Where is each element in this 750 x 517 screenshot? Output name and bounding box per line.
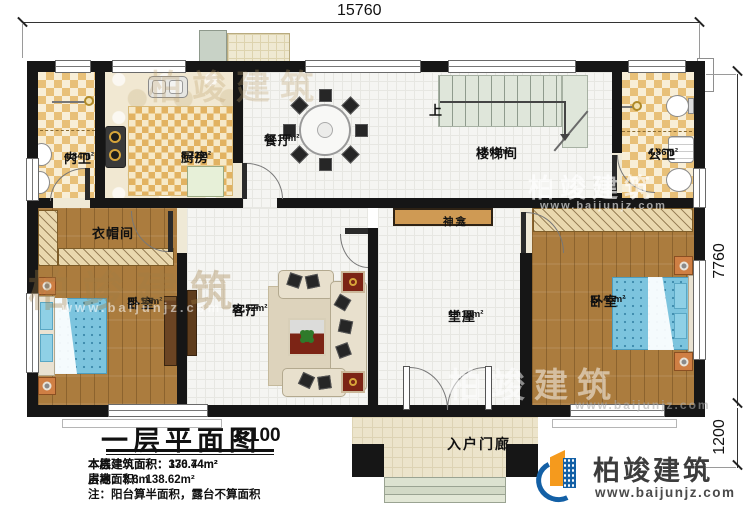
wall-kitchen-dining bbox=[233, 72, 243, 163]
logo-website: www.baijunjz.com bbox=[595, 485, 736, 500]
bed-left-pillow bbox=[40, 334, 53, 362]
dining-table-center bbox=[317, 122, 333, 138]
coffee-table-plant bbox=[301, 330, 313, 342]
window-left-bedroom bbox=[26, 293, 39, 373]
dimension-top-value: 15760 bbox=[337, 2, 382, 20]
bedroom-right-door-leaf bbox=[521, 212, 526, 253]
plan-scale: 1:100 bbox=[232, 425, 281, 447]
dimension-extension bbox=[22, 24, 23, 58]
window-top-innerbath bbox=[55, 60, 91, 73]
bed-right-pillow bbox=[674, 313, 687, 339]
wall-mainhall-bedroom bbox=[520, 253, 532, 405]
window-bottom-bedroom-right bbox=[570, 404, 665, 417]
stair-arrow-head bbox=[560, 134, 570, 141]
window-right-publicbath bbox=[693, 168, 706, 208]
wall-living-mainhall bbox=[368, 228, 378, 405]
shower-head-innerbath bbox=[84, 96, 94, 106]
dimension-extension bbox=[706, 74, 736, 75]
flue-box bbox=[199, 30, 227, 62]
ledge-box bbox=[227, 33, 290, 62]
window-top-publicbath bbox=[628, 60, 686, 73]
title-underline-thick bbox=[106, 449, 274, 452]
nightstand bbox=[38, 277, 56, 295]
kitchen-door-leaf bbox=[242, 163, 247, 199]
porch-column-left bbox=[352, 444, 384, 477]
publicbath-door-leaf bbox=[612, 155, 617, 193]
wardrobe-left-vertical bbox=[38, 210, 58, 266]
kitchen-fridge bbox=[187, 166, 224, 197]
door-gap-cloak bbox=[177, 208, 187, 253]
dining-chair bbox=[319, 89, 332, 102]
bed-right-pillow bbox=[674, 283, 687, 309]
logo-company: 柏竣建筑 bbox=[593, 449, 713, 488]
dining-chair bbox=[319, 158, 332, 171]
dimension-extension bbox=[699, 24, 700, 58]
bed-left-pillow bbox=[40, 302, 53, 330]
wall-h-right bbox=[378, 198, 705, 208]
tv-console bbox=[187, 290, 197, 356]
end-table-ring bbox=[349, 278, 357, 286]
sofa-pillow bbox=[317, 375, 332, 390]
hall-passage-floor bbox=[243, 198, 277, 208]
stove-burner-1 bbox=[109, 131, 121, 143]
stair-arrow-v bbox=[564, 101, 566, 135]
main-hall-floor bbox=[378, 208, 520, 405]
sill-bottom-right bbox=[552, 419, 677, 428]
sofa-pillow bbox=[338, 319, 353, 334]
stair-arrow-h bbox=[440, 101, 566, 103]
logo-icon bbox=[535, 448, 589, 506]
nightstand bbox=[674, 352, 693, 371]
window-top-dining bbox=[305, 60, 421, 73]
stove-burner-2 bbox=[109, 149, 121, 161]
wall-stair-publicbath-a bbox=[612, 61, 622, 153]
kitchen-sink-basin-l bbox=[152, 80, 166, 94]
shower-screen-publicbath bbox=[622, 131, 692, 132]
window-right-bedroom bbox=[693, 260, 706, 360]
logo: 柏竣建筑 www.baijunjz.com bbox=[535, 448, 745, 510]
wardrobe-left-band bbox=[58, 248, 174, 266]
wall-cloak-living bbox=[177, 253, 187, 405]
entrance-door-leaf-left bbox=[403, 366, 410, 410]
window-bottom-bedroom-left bbox=[108, 404, 208, 417]
innerbath-door-leaf bbox=[85, 168, 90, 200]
floor-plan-canvas: 上 bbox=[0, 0, 750, 517]
dining-chair bbox=[355, 124, 368, 137]
title-underline-thin bbox=[106, 454, 274, 455]
wall-innerbath-kitchen bbox=[95, 72, 105, 198]
nightstand bbox=[38, 377, 56, 395]
sink-publicbath bbox=[666, 168, 692, 192]
living-door-leaf bbox=[345, 228, 368, 234]
window-top-stairs bbox=[448, 60, 576, 73]
wall-h-mid bbox=[90, 198, 243, 208]
entrance-door-leaf-right bbox=[485, 366, 492, 410]
nightstand bbox=[674, 256, 693, 275]
kitchen-sink-basin-r bbox=[169, 80, 183, 94]
toilet-publicbath bbox=[666, 95, 689, 117]
dimension-right-value: 7760 bbox=[711, 223, 729, 299]
window-top-kitchen bbox=[112, 60, 186, 73]
wall-h-hall bbox=[277, 198, 378, 208]
stats-note: 注：阳台算半面积，露台不算面积 bbox=[88, 486, 261, 502]
wall-right bbox=[694, 61, 705, 417]
shower-screen-innerbath bbox=[40, 130, 95, 131]
logo-building-blue-icon bbox=[563, 458, 576, 488]
end-table-ring bbox=[349, 378, 357, 386]
dimension-line-top bbox=[22, 22, 700, 23]
cloak-door-leaf bbox=[168, 211, 173, 252]
dimension-line-right bbox=[737, 74, 738, 406]
sofa-bottom bbox=[282, 368, 346, 397]
window-left-innerbath bbox=[26, 158, 39, 201]
dresser-bedroom-left bbox=[164, 296, 177, 366]
shower-head-publicbath bbox=[632, 101, 642, 111]
shower-arm-innerbath bbox=[52, 101, 86, 103]
porch-step-3 bbox=[384, 494, 506, 503]
sofa-pillow bbox=[305, 274, 320, 289]
